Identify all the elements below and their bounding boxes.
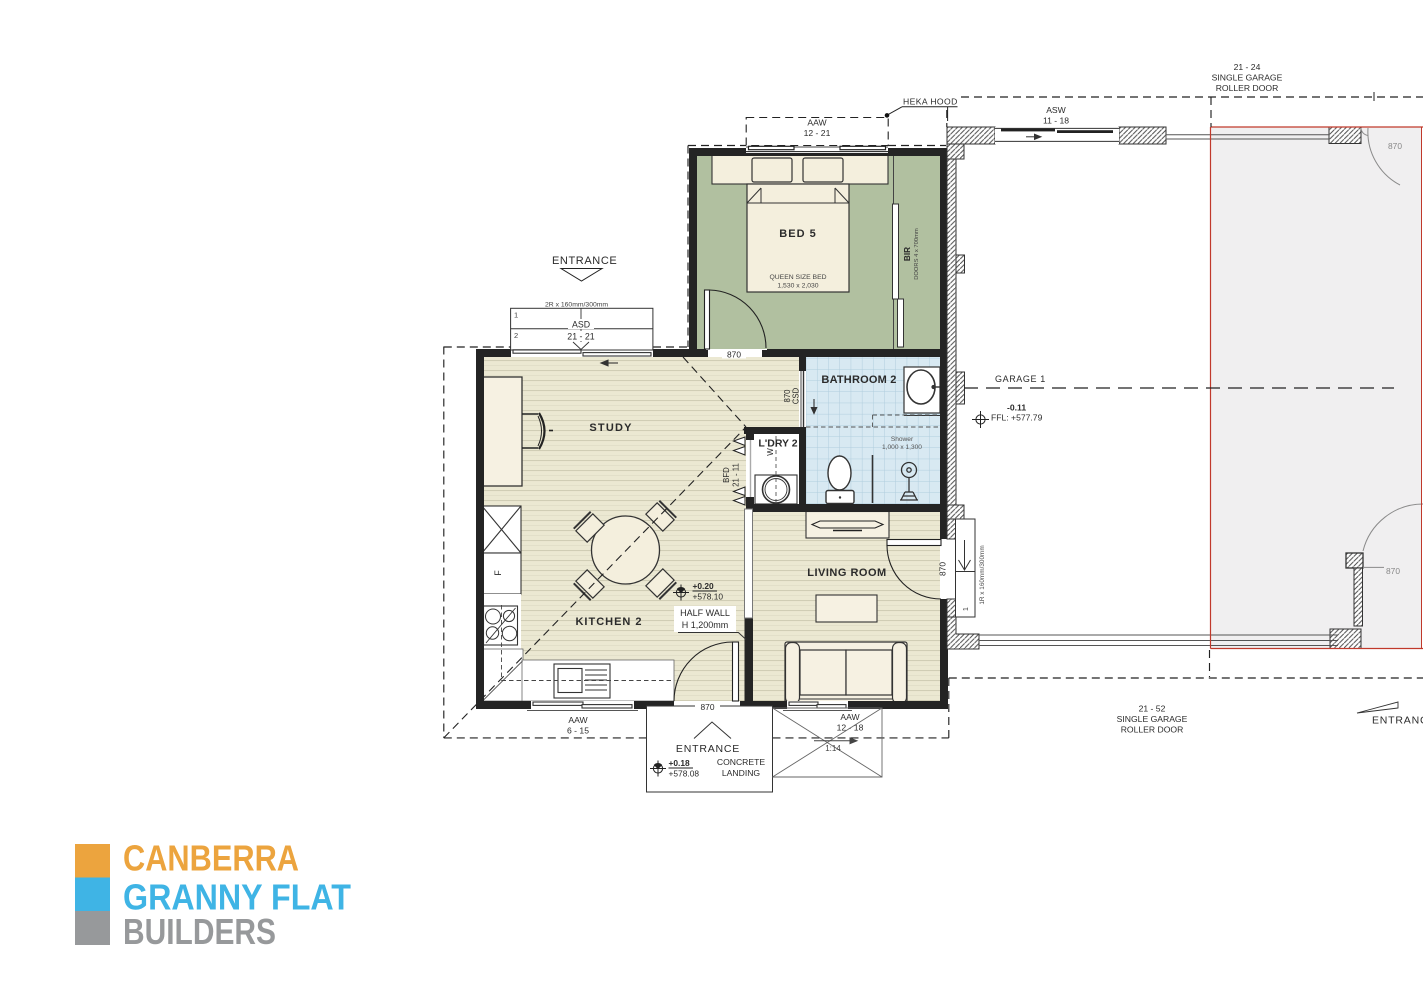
svg-text:KITCHEN 2: KITCHEN 2: [575, 616, 642, 628]
svg-text:6 - 15: 6 - 15: [567, 726, 589, 736]
svg-text:870: 870: [1386, 566, 1400, 576]
svg-text:L'DRY 2: L'DRY 2: [758, 438, 797, 450]
svg-text:ENTRANCE: ENTRANCE: [1372, 715, 1423, 727]
svg-text:AAW: AAW: [840, 712, 860, 722]
svg-text:+578.08: +578.08: [669, 769, 700, 779]
svg-text:H 1,200mm: H 1,200mm: [682, 620, 729, 630]
svg-text:BED 5: BED 5: [779, 228, 816, 240]
svg-text:AAW: AAW: [568, 715, 588, 725]
svg-text:1,530 x 2,030: 1,530 x 2,030: [777, 283, 818, 290]
svg-text:21 - 21: 21 - 21: [567, 332, 594, 342]
svg-text:BATHROOM 2: BATHROOM 2: [821, 374, 896, 386]
svg-text:870: 870: [938, 562, 948, 576]
svg-text:21 - 52: 21 - 52: [1139, 704, 1166, 714]
svg-text:BFD: BFD: [722, 467, 731, 483]
svg-text:DOORS 4 x 700mm: DOORS 4 x 700mm: [914, 228, 920, 280]
svg-text:1: 1: [514, 311, 518, 320]
svg-text:870: 870: [701, 702, 715, 712]
svg-text:SINGLE GARAGE: SINGLE GARAGE: [1212, 73, 1283, 83]
svg-text:AAW: AAW: [807, 118, 827, 128]
svg-text:STUDY: STUDY: [589, 422, 632, 434]
svg-text:FFL: +577.79: FFL: +577.79: [991, 413, 1043, 423]
svg-text:ROLLER DOOR: ROLLER DOOR: [1121, 725, 1184, 735]
svg-text:W: W: [766, 448, 775, 456]
svg-text:1,000 x 1,300: 1,000 x 1,300: [882, 444, 922, 451]
svg-text:1R x 160mm/300mm: 1R x 160mm/300mm: [979, 545, 986, 604]
svg-text:+0.18: +0.18: [669, 758, 691, 768]
svg-text:CANBERRA: CANBERRA: [123, 838, 299, 879]
svg-text:1:14: 1:14: [825, 744, 841, 753]
svg-text:1: 1: [963, 607, 970, 611]
svg-text:21 - 24: 21 - 24: [1234, 62, 1261, 72]
svg-text:HEKA HOOD: HEKA HOOD: [903, 97, 958, 107]
svg-text:+0.20: +0.20: [693, 581, 715, 591]
svg-text:12 - 18: 12 - 18: [837, 723, 864, 733]
svg-text:2R x 160mm/300mm: 2R x 160mm/300mm: [545, 302, 608, 309]
svg-text:GARAGE 1: GARAGE 1: [995, 374, 1046, 384]
svg-text:+578.10: +578.10: [693, 592, 724, 602]
svg-text:870: 870: [727, 350, 741, 360]
svg-text:11 - 18: 11 - 18: [1043, 116, 1069, 126]
svg-text:21 - 11: 21 - 11: [732, 463, 741, 487]
svg-text:QUEEN SIZE BED: QUEEN SIZE BED: [769, 274, 826, 281]
svg-text:HALF WALL: HALF WALL: [680, 608, 730, 618]
svg-text:LIVING ROOM: LIVING ROOM: [807, 567, 886, 579]
svg-text:F: F: [493, 570, 503, 576]
svg-text:870: 870: [1388, 141, 1402, 151]
svg-text:BUILDERS: BUILDERS: [123, 911, 276, 952]
svg-text:ENTRANCE: ENTRANCE: [552, 255, 617, 267]
svg-text:BIR: BIR: [903, 247, 912, 261]
svg-text:ENTRANCE: ENTRANCE: [676, 743, 740, 755]
svg-text:ROLLER DOOR: ROLLER DOOR: [1216, 83, 1279, 93]
svg-text:12 - 21: 12 - 21: [804, 128, 831, 138]
svg-text:-0.11: -0.11: [1007, 403, 1026, 413]
svg-text:ASD: ASD: [572, 320, 590, 330]
svg-text:ASW: ASW: [1046, 105, 1066, 115]
svg-text:CSD: CSD: [792, 387, 801, 404]
svg-text:SINGLE GARAGE: SINGLE GARAGE: [1117, 714, 1188, 724]
svg-text:2: 2: [514, 331, 518, 340]
svg-text:CONCRETE: CONCRETE: [717, 757, 765, 767]
svg-text:Shower: Shower: [891, 436, 914, 443]
svg-text:LANDING: LANDING: [722, 768, 761, 778]
